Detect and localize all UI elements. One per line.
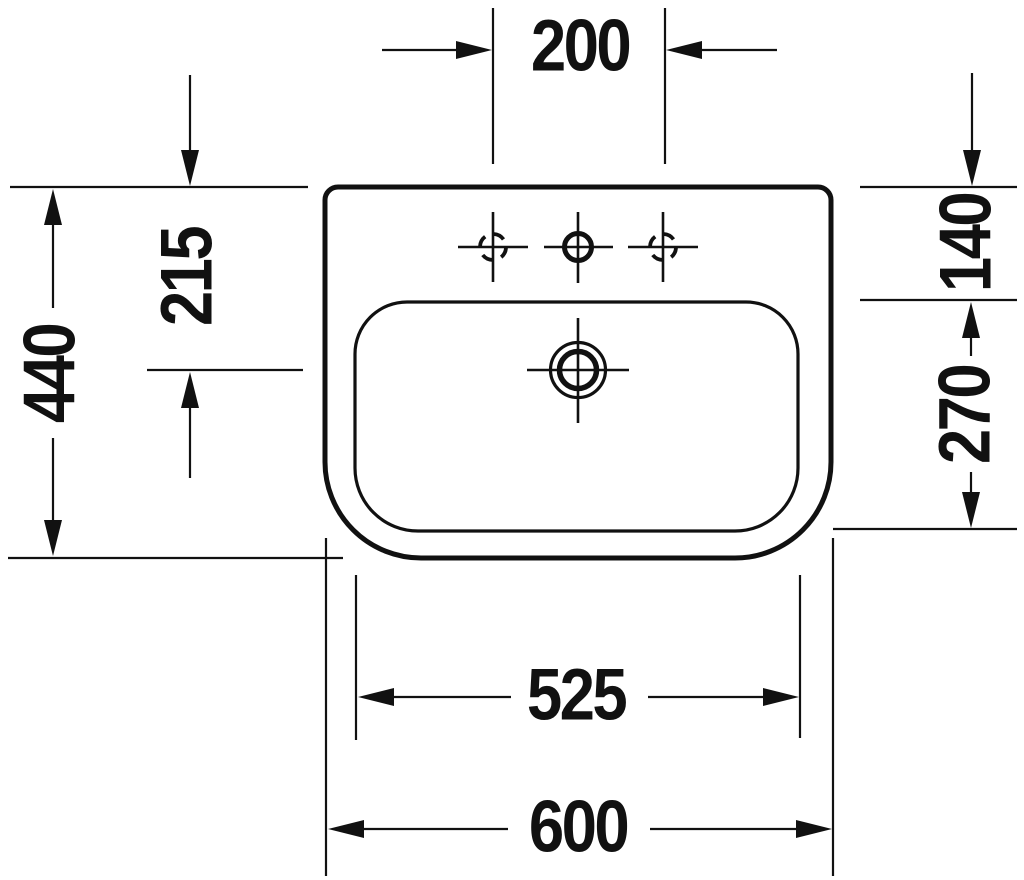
dim-label-basin-inner-width: 525 xyxy=(527,659,625,732)
basin-inner-outline xyxy=(355,302,798,531)
dim-label-rear-deck-depth: 140 xyxy=(930,194,1003,292)
drain-icon xyxy=(527,318,629,423)
faucet-hole-center-icon xyxy=(544,212,613,283)
dim-label-basin-inner-depth: 270 xyxy=(929,366,1002,464)
faucet-hole-right-icon xyxy=(628,212,698,282)
dim-label-drain-center-offset: 215 xyxy=(151,228,224,326)
washbasin-dimension-drawing: 200 440 215 140 270 525 600 xyxy=(0,0,1024,880)
drawing-linework xyxy=(0,0,1024,880)
dim-label-overall-depth: 440 xyxy=(14,325,87,423)
dim-label-tap-hole-spacing: 200 xyxy=(531,10,629,83)
dim-label-overall-width: 600 xyxy=(529,791,627,864)
faucet-hole-left-icon xyxy=(458,212,528,282)
